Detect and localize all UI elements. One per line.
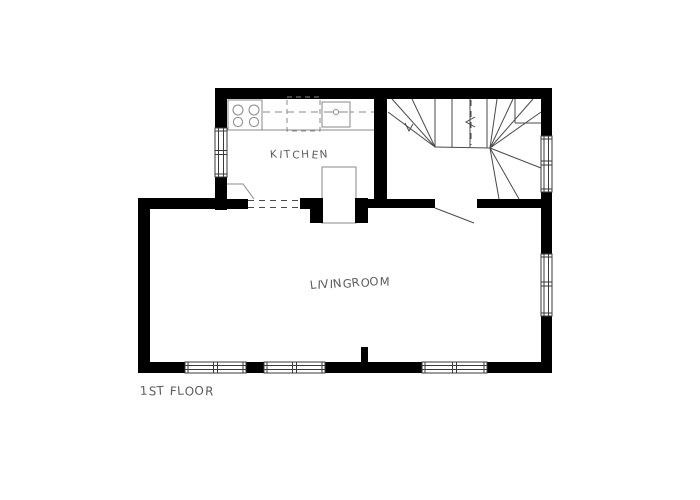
wall-interior-b <box>368 199 435 208</box>
window-frame <box>185 362 246 373</box>
wall-bottom-3 <box>325 362 422 373</box>
floor-plan-canvas: KITCHEN LIVINGROOM 1ST FLOOR <box>0 0 700 500</box>
window-living-south-1 <box>185 362 246 373</box>
window-kitchen-west <box>215 128 227 177</box>
staircase <box>388 99 541 199</box>
wall-interior-a <box>300 198 310 209</box>
stair-winder-line <box>388 112 435 147</box>
stair-run-edge <box>435 147 490 148</box>
door-leaf <box>435 208 474 223</box>
wall-bottom-1 <box>138 362 185 373</box>
window-frame <box>541 254 552 316</box>
wall-interior-c <box>477 199 541 208</box>
window-frame <box>215 128 227 177</box>
wall-kitchen-left-upper <box>215 88 227 128</box>
fireplace-pier-right <box>355 198 368 223</box>
window-stairs-east <box>541 136 552 192</box>
kitchen-opening-dashed <box>248 201 300 208</box>
wall-bottom-2 <box>246 362 264 373</box>
window-living-east <box>541 254 552 316</box>
wall-right-upper <box>541 88 552 136</box>
window-frame <box>264 362 325 373</box>
fireplace-chimney <box>310 167 368 223</box>
window-living-south-2 <box>264 362 325 373</box>
stair-winder-line <box>412 99 435 147</box>
walls <box>138 88 552 373</box>
wall-interior-left <box>138 198 248 209</box>
kitchen-label: KITCHEN <box>269 148 330 162</box>
corner-cabinet-fill <box>227 184 254 199</box>
fireplace-pier-left <box>310 198 323 223</box>
window-frame <box>541 136 552 192</box>
wall-right-mid <box>541 192 552 254</box>
floor-plan: KITCHEN LIVINGROOM 1ST FLOOR <box>0 0 700 500</box>
stair-winder-line <box>490 148 541 168</box>
window-living-south-3 <box>422 362 487 373</box>
wall-living-left <box>138 198 150 373</box>
stair-winder-line <box>392 99 435 147</box>
chimney-box <box>322 167 356 223</box>
window-frame <box>422 362 487 373</box>
wall-divider-kitchen-stairs <box>374 99 387 199</box>
upper-cabinet-dashed <box>287 97 320 131</box>
wall-bottom-4 <box>487 362 552 373</box>
floor-title: 1ST FLOOR <box>139 383 214 398</box>
wall-top <box>215 88 552 99</box>
wall-stub <box>361 347 368 363</box>
livingroom-label: LIVINGROOM <box>309 273 391 293</box>
